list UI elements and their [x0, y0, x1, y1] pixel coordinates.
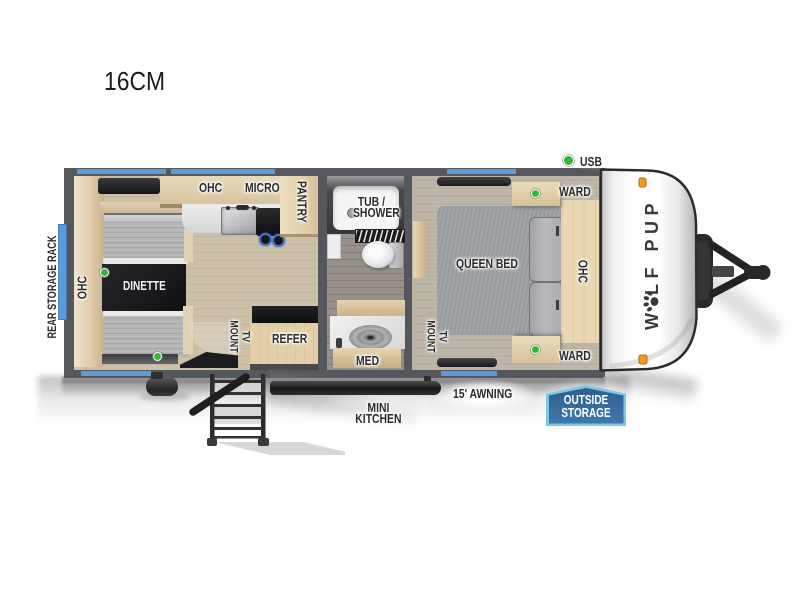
svg-text:W: W: [642, 313, 662, 330]
svg-text:LF PUP: LF PUP: [642, 198, 662, 295]
